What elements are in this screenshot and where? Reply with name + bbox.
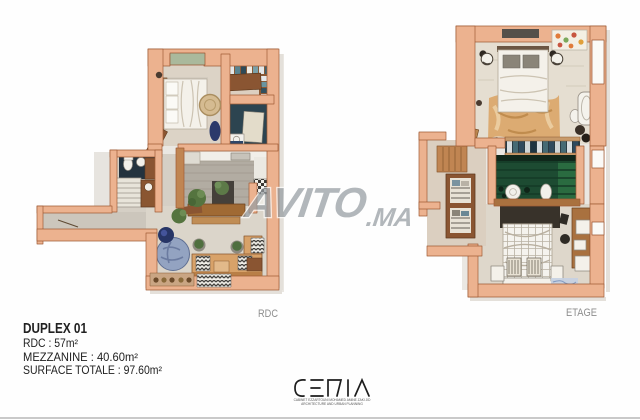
svg-text:AVITO: AVITO [241,179,370,226]
svg-text:RDC : 57m²: RDC : 57m² [23,338,78,350]
svg-text:RDC: RDC [258,308,278,320]
svg-text:DUPLEX 01: DUPLEX 01 [23,321,87,337]
svg-text:ETAGE: ETAGE [566,307,597,319]
svg-text:.MA: .MA [364,202,414,232]
svg-text:SURFACE TOTALE : 97.60m²: SURFACE TOTALE : 97.60m² [23,365,162,377]
svg-text:MEZZANINE : 40.60m²: MEZZANINE : 40.60m² [23,352,138,364]
svg-text:ARCHITECTURE AND URBAN PLANNIN: ARCHITECTURE AND URBAN PLANNING [301,402,363,406]
